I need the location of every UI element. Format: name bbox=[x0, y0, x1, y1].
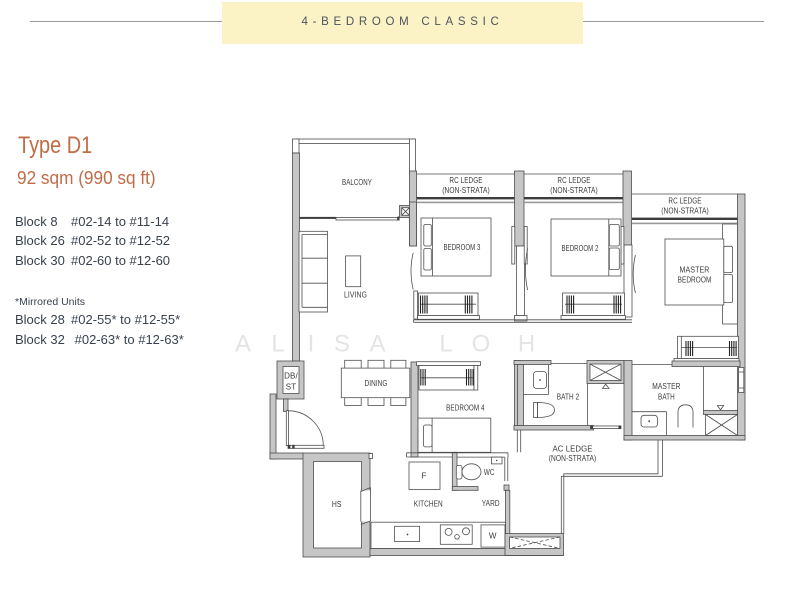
svg-text:L: L bbox=[271, 331, 284, 358]
svg-text:(NON-STRATA): (NON-STRATA) bbox=[661, 206, 709, 215]
svg-text:A: A bbox=[369, 331, 385, 358]
svg-text:HS: HS bbox=[332, 500, 342, 509]
svg-text:DINING: DINING bbox=[365, 379, 388, 388]
svg-text:L: L bbox=[439, 331, 452, 358]
svg-text:I: I bbox=[308, 331, 315, 358]
svg-text:BEDROOM: BEDROOM bbox=[678, 275, 712, 284]
svg-text:WC: WC bbox=[484, 468, 495, 477]
svg-text:BEDROOM 2: BEDROOM 2 bbox=[562, 244, 599, 253]
svg-text:O: O bbox=[472, 331, 491, 358]
svg-text:H: H bbox=[518, 331, 535, 358]
svg-text:BALCONY: BALCONY bbox=[342, 178, 372, 187]
svg-text:MASTER: MASTER bbox=[652, 382, 680, 391]
svg-text:W: W bbox=[489, 532, 497, 541]
svg-text:BEDROOM 4: BEDROOM 4 bbox=[446, 403, 485, 412]
svg-text:(NON-STRATA): (NON-STRATA) bbox=[549, 454, 597, 463]
svg-text:RC LEDGE: RC LEDGE bbox=[449, 176, 482, 185]
svg-text:(NON-STRATA): (NON-STRATA) bbox=[442, 186, 490, 195]
svg-text:BATH: BATH bbox=[658, 393, 675, 402]
svg-text:KITCHEN: KITCHEN bbox=[414, 500, 443, 509]
svg-text:DB/: DB/ bbox=[284, 372, 298, 381]
svg-text:YARD: YARD bbox=[482, 499, 500, 508]
svg-text:BATH 2: BATH 2 bbox=[557, 392, 580, 401]
svg-text:A: A bbox=[235, 331, 251, 358]
svg-text:S: S bbox=[334, 331, 350, 358]
svg-text:AC LEDGE: AC LEDGE bbox=[553, 444, 593, 453]
svg-text:RC LEDGE: RC LEDGE bbox=[557, 176, 590, 185]
svg-text:F: F bbox=[422, 472, 427, 481]
svg-text:BEDROOM 3: BEDROOM 3 bbox=[444, 243, 481, 252]
svg-text:MASTER: MASTER bbox=[680, 266, 710, 275]
svg-text:RC LEDGE: RC LEDGE bbox=[668, 197, 701, 206]
svg-text:(NON-STRATA): (NON-STRATA) bbox=[550, 186, 598, 195]
svg-text:ST: ST bbox=[286, 383, 296, 392]
svg-text:LIVING: LIVING bbox=[344, 290, 367, 299]
